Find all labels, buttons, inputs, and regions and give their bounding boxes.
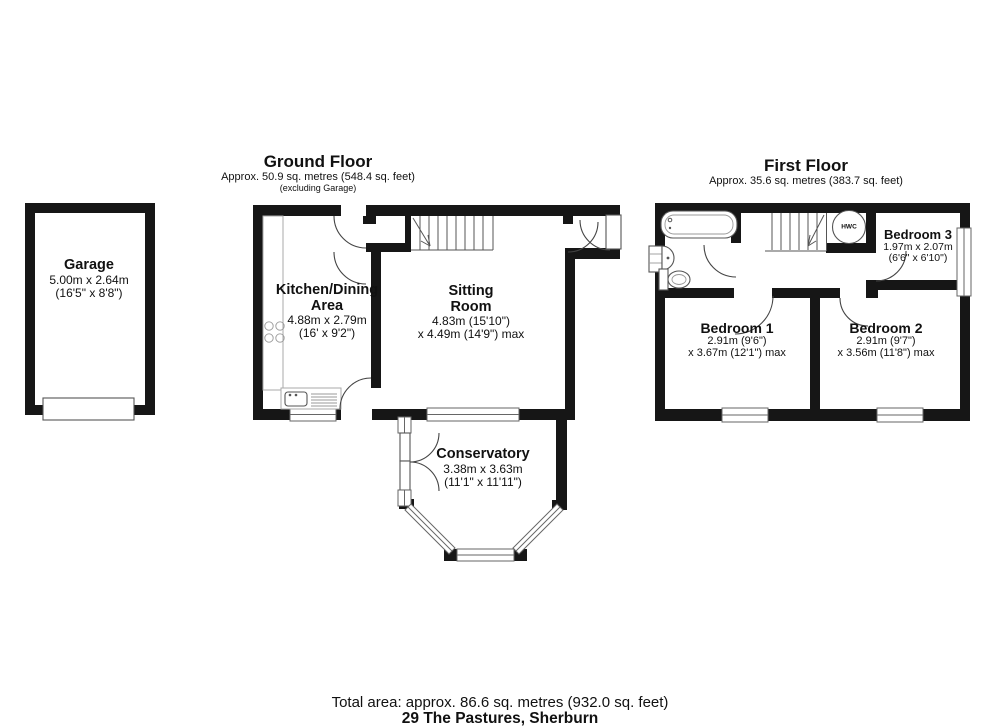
conservatory-doors bbox=[398, 417, 439, 506]
floor-plan: Ground Floor Approx. 50.9 sq. metres (54… bbox=[0, 0, 1000, 727]
first-floor-header: First Floor Approx. 35.6 sq. metres (383… bbox=[709, 156, 903, 187]
bath bbox=[661, 211, 737, 238]
hwc-label: HWC bbox=[841, 224, 857, 231]
first-floor-title: First Floor bbox=[709, 156, 903, 175]
garage-label: Garage 5.00m x 2.64m (16'5" x 8'8") bbox=[49, 258, 128, 300]
kitchen-label: Kitchen/Dining Area 4.88m x 2.79m (16' x… bbox=[276, 283, 378, 340]
bedroom2-label: Bedroom 2 2.91m (9'7") x 3.56m (11'8") m… bbox=[838, 321, 935, 359]
conservatory-label: Conservatory 3.38m x 3.63m (11'1" x 11'1… bbox=[436, 447, 529, 489]
basin bbox=[649, 246, 674, 272]
bedroom1-label: Bedroom 1 2.91m (9'6") x 3.67m (12'1") m… bbox=[688, 321, 786, 359]
sitting-room-label: Sitting Room 4.83m (15'10") x 4.49m (14'… bbox=[418, 284, 525, 341]
address-text: 29 The Pastures, Sherburn bbox=[402, 710, 598, 727]
ground-floor-note: (excluding Garage) bbox=[221, 183, 415, 193]
total-area-text: Total area: approx. 86.6 sq. metres (932… bbox=[332, 694, 669, 711]
conservatory-bay-windows bbox=[405, 504, 563, 561]
bedroom3-label: Bedroom 3 1.97m x 2.07m (6'6" x 6'10") bbox=[883, 228, 952, 264]
staircase-first bbox=[765, 213, 827, 251]
toilet bbox=[659, 269, 690, 290]
staircase-ground bbox=[411, 216, 493, 250]
ground-floor-area: Approx. 50.9 sq. metres (548.4 sq. feet) bbox=[221, 171, 415, 183]
floor-plan-graphics bbox=[0, 0, 1000, 727]
ground-floor-title: Ground Floor bbox=[221, 152, 415, 171]
ground-floor-header: Ground Floor Approx. 50.9 sq. metres (54… bbox=[221, 152, 415, 193]
first-floor-area: Approx. 35.6 sq. metres (383.7 sq. feet) bbox=[709, 175, 903, 187]
garage-door bbox=[43, 398, 134, 420]
garage-walls bbox=[25, 203, 155, 415]
